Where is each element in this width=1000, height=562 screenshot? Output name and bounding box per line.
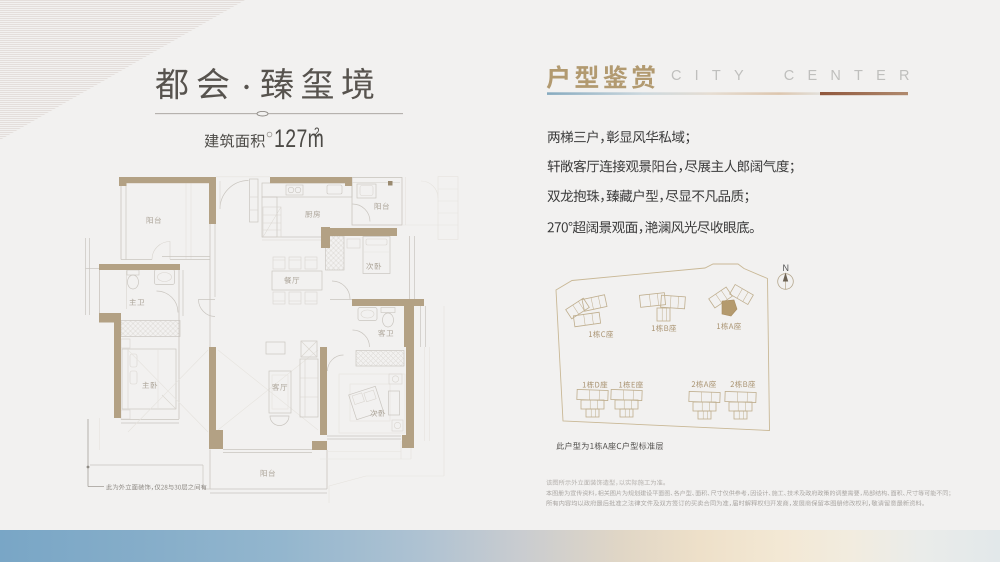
svg-text:N: N xyxy=(783,263,790,273)
